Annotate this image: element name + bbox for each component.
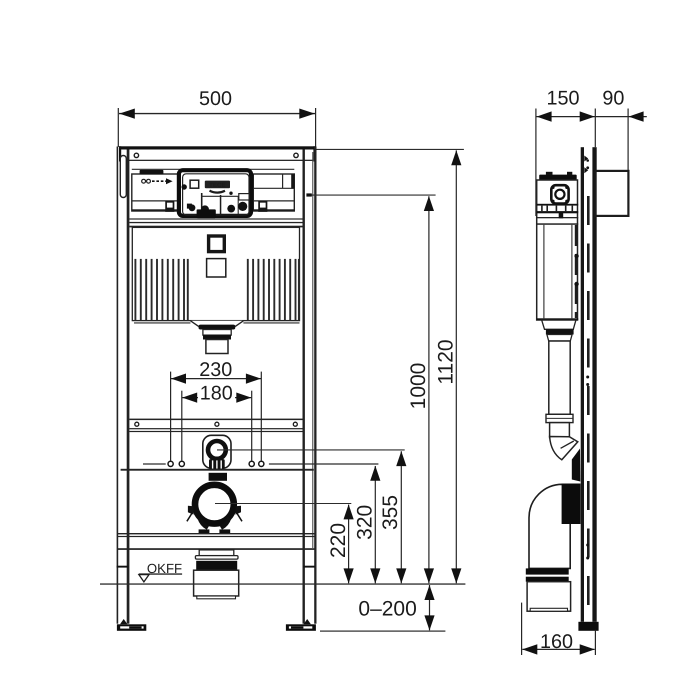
svg-text:1120: 1120 [434,339,457,384]
svg-text:500: 500 [199,88,232,110]
svg-text:230: 230 [199,359,232,381]
svg-text:160: 160 [540,631,573,653]
svg-text:90: 90 [602,88,624,110]
svg-text:220: 220 [327,523,350,558]
svg-text:355: 355 [379,495,402,530]
svg-text:1000: 1000 [407,363,430,410]
svg-text:0–200: 0–200 [358,598,416,621]
svg-text:180: 180 [200,383,233,405]
svg-text:320: 320 [353,505,376,540]
svg-text:TECE: TECE [209,182,226,189]
svg-text:150: 150 [546,88,579,110]
